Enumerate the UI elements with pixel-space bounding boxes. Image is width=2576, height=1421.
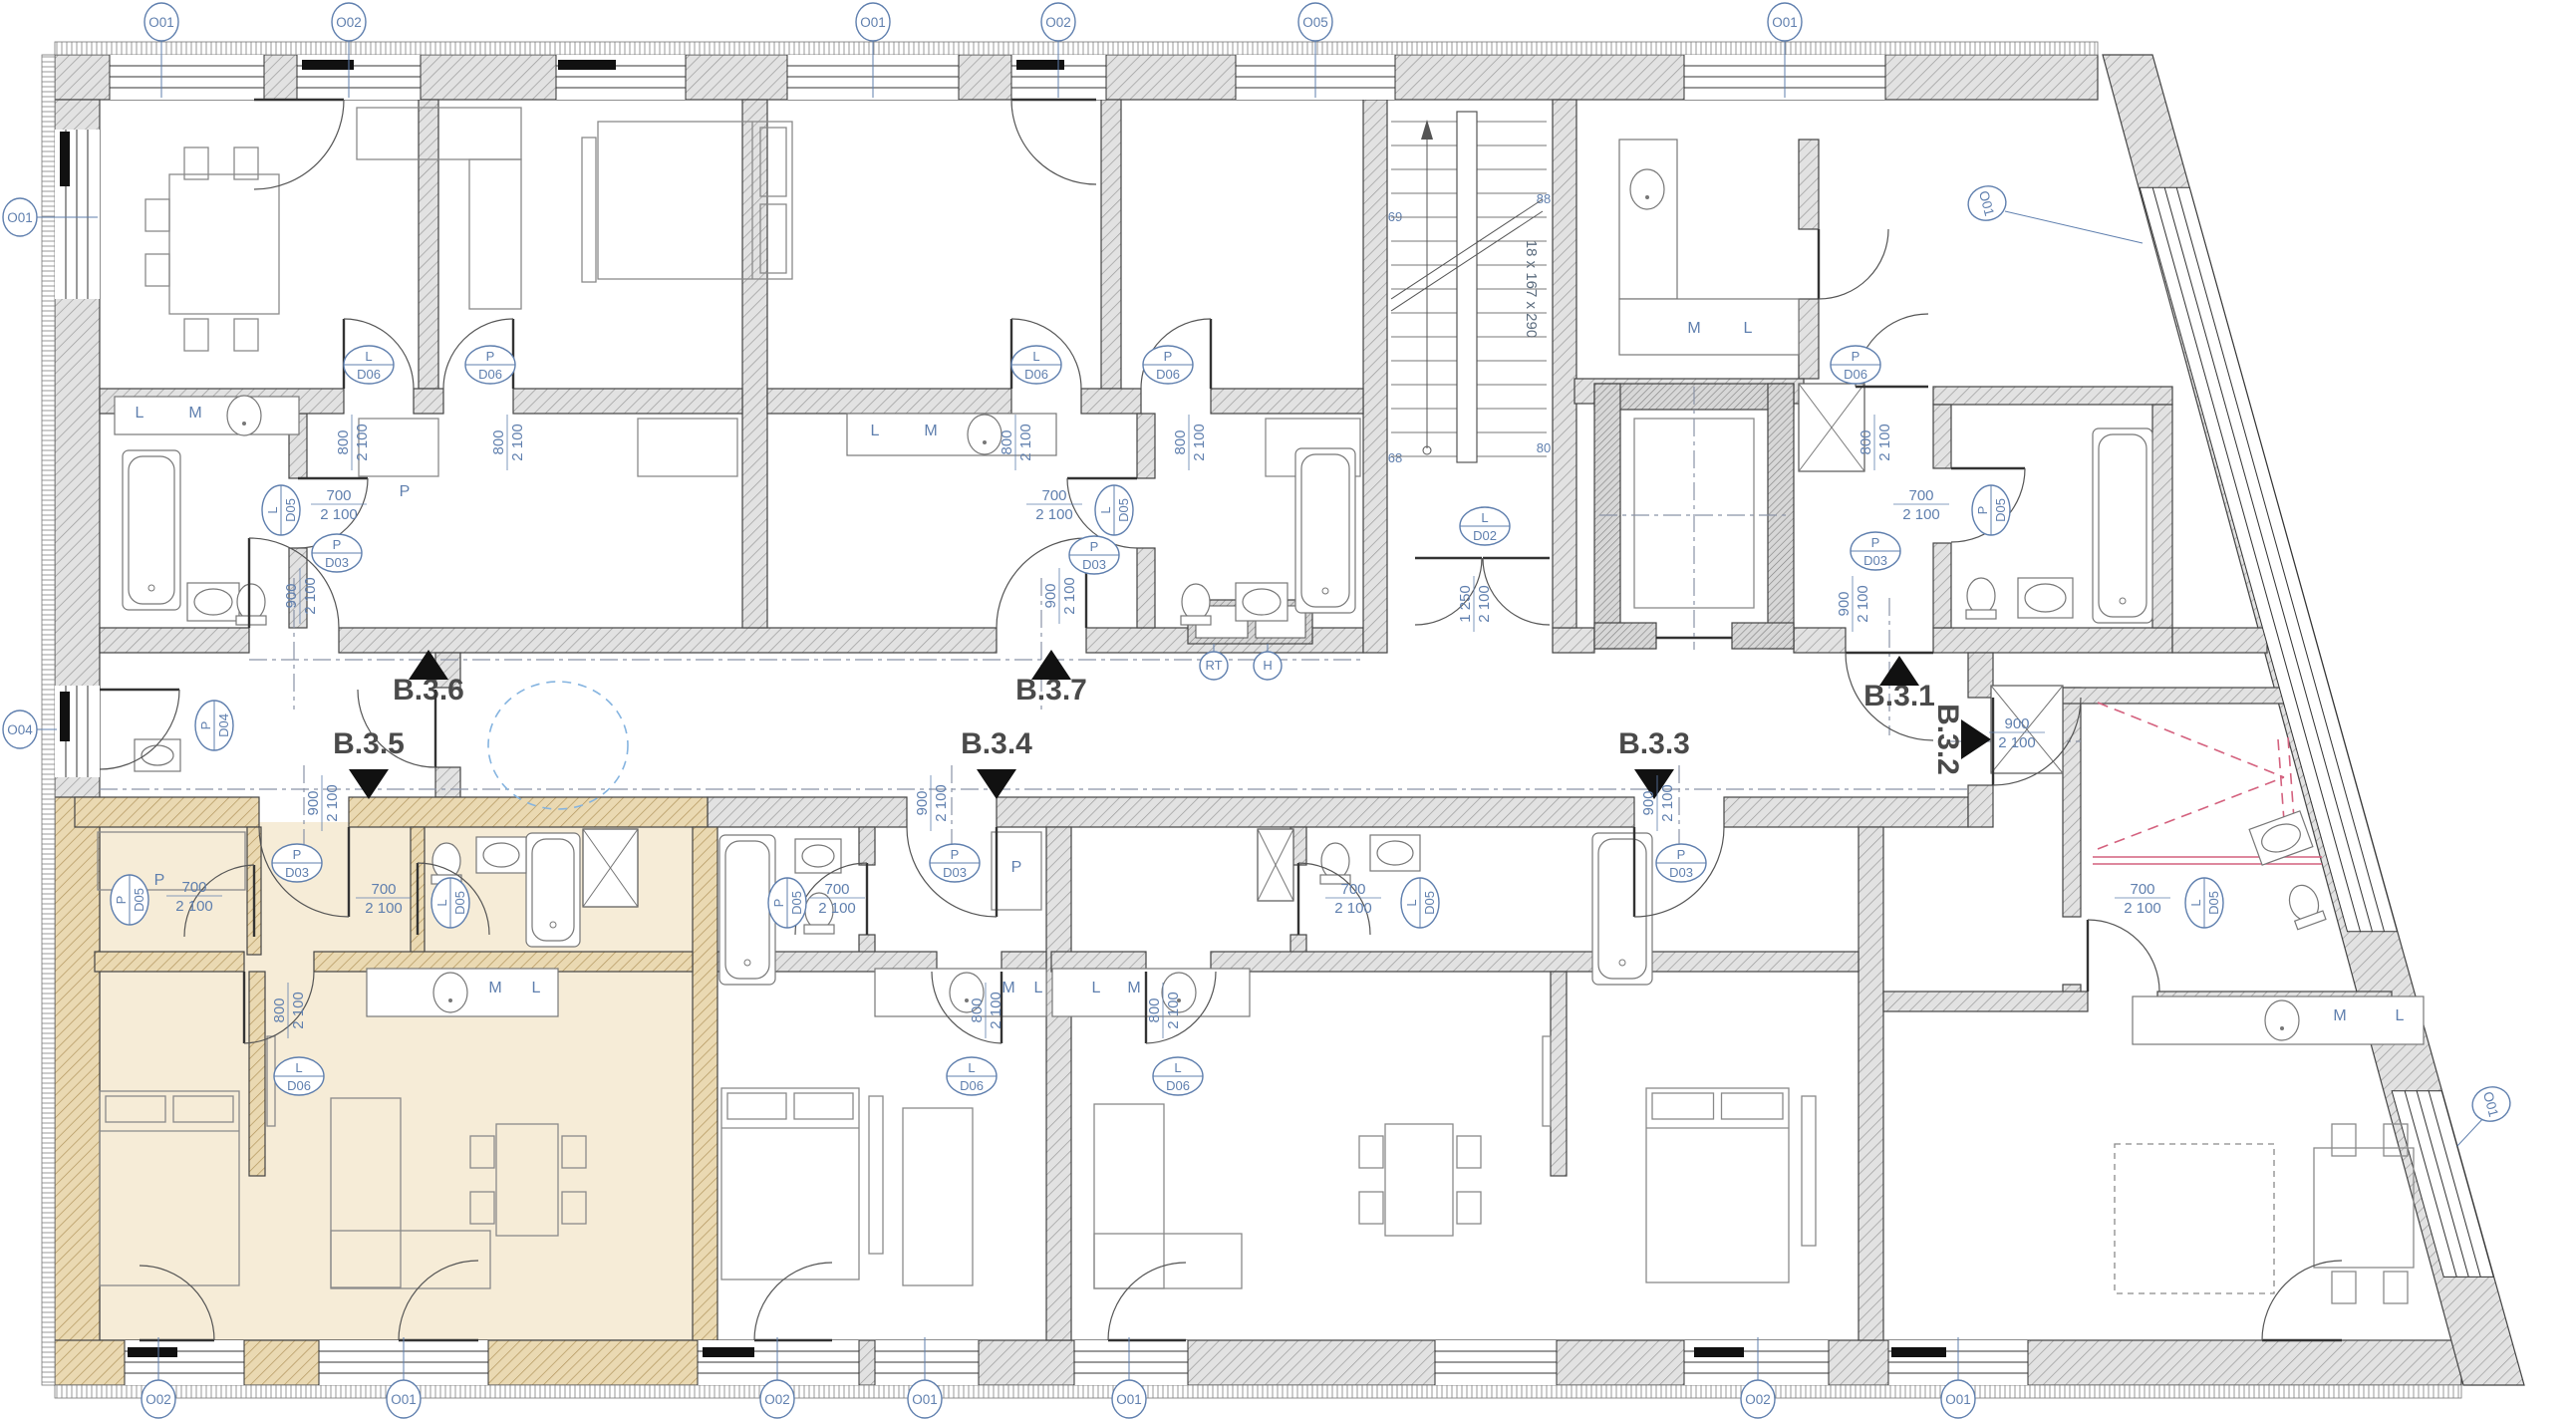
bathtub [719, 835, 775, 985]
interior-wall-highlighted [75, 797, 259, 827]
door-tag-leaf: L [1481, 510, 1488, 525]
kitchen-letter-l: L [532, 980, 541, 996]
door-height: 2 100 [1334, 900, 1372, 917]
door-height: 2 100 [509, 424, 526, 461]
door-height: 2 100 [175, 898, 213, 915]
interior-wall [339, 628, 997, 653]
door-height: 2 100 [988, 992, 1004, 1029]
interior-wall [742, 100, 767, 628]
kitchen-sink [1630, 169, 1664, 209]
interior-wall [1933, 387, 2172, 405]
door-tag-leaf: P [486, 349, 495, 364]
bathtub [2093, 428, 2152, 623]
kitchen-letter-l: L [1744, 320, 1753, 337]
door-tag-leaf: L [365, 349, 372, 364]
bathtub [1295, 448, 1355, 613]
door-tag: PD06 [465, 346, 515, 384]
door-width: 700 [1908, 487, 1933, 504]
door-tag-leaf: L [265, 506, 280, 513]
door-tag: PD03 [1069, 536, 1119, 574]
door-height: 2 100 [2124, 900, 2161, 917]
wash-basin [476, 837, 526, 873]
door-tag-leaf: P [1871, 535, 1880, 550]
door-tag-code: D06 [287, 1078, 311, 1093]
wardrobe-letter: P [1011, 859, 1022, 876]
door-height: 2 100 [1476, 585, 1493, 623]
door-width: 700 [181, 879, 206, 896]
grid-marker-label: O05 [1302, 15, 1328, 30]
door-width: 800 [271, 997, 288, 1022]
grid-marker-label: O02 [145, 1392, 171, 1407]
wash-basin [2018, 578, 2073, 618]
door-tag: LD05 [431, 878, 469, 928]
grid-marker-label: O01 [1945, 1392, 1971, 1407]
door-height: 2 100 [324, 784, 341, 822]
door-tag: LD06 [274, 1057, 324, 1095]
interior-wall-highlighted [693, 827, 717, 1340]
door-tag: LD06 [344, 346, 394, 384]
door-tag-leaf: P [293, 847, 302, 862]
bathtub [1592, 833, 1652, 985]
grid-marker-label: O02 [336, 15, 362, 30]
interior-wall-highlighted [249, 972, 265, 1176]
interior-wall [2063, 688, 2292, 704]
door-tag-code: D06 [960, 1078, 984, 1093]
door-tag-code: D04 [216, 713, 231, 737]
door-tag-leaf: L [295, 1060, 302, 1075]
bathtub [526, 833, 580, 947]
elevator-shaft-wall [1732, 623, 1794, 649]
elevator-shaft-wall [1768, 384, 1794, 649]
kitchen-letter-l: L [1034, 980, 1043, 996]
door-width: 700 [824, 881, 849, 898]
door-tag-code: D03 [285, 865, 309, 880]
door-tag: PD06 [1143, 346, 1193, 384]
door-height: 2 100 [1998, 734, 2036, 751]
door-leaf-mark [1016, 60, 1064, 70]
interior-wall [1137, 414, 1155, 478]
grid-marker-label: O02 [1745, 1392, 1771, 1407]
door-width: 800 [1858, 429, 1874, 454]
interior-wall [2172, 628, 2267, 653]
kitchen-letter-l: L [1092, 980, 1101, 996]
interior-wall [1933, 405, 1951, 468]
grid-marker-label: O01 [1116, 1392, 1142, 1407]
wash-basin [187, 583, 239, 621]
kitchen-letter-l: L [2396, 1007, 2405, 1024]
interior-wall [1794, 628, 1846, 653]
grid-marker-label: O01 [7, 210, 33, 225]
door-tag-code: D05 [1116, 498, 1131, 522]
interior-wall [1799, 299, 1819, 379]
door-tag-code: D03 [943, 865, 967, 880]
riser-label-text: RT [1205, 658, 1222, 673]
door-height: 2 100 [354, 424, 371, 461]
grid-marker-label: O04 [7, 722, 33, 737]
door-tag-code: D06 [357, 367, 381, 382]
interior-wall [1211, 389, 1363, 414]
interior-wall [1933, 543, 1951, 628]
interior-wall [1211, 952, 1859, 972]
kitchen-letter-m: M [924, 423, 937, 439]
toilet [236, 584, 266, 625]
door-tag-code: D06 [1166, 1078, 1190, 1093]
door-tag-code: D03 [325, 555, 349, 570]
interior-wall-highlighted [95, 952, 244, 972]
door-tag: LD05 [1095, 485, 1133, 535]
interior-wall [2063, 688, 2081, 917]
door-width: 800 [1172, 429, 1189, 454]
door-tag-leaf: P [951, 847, 960, 862]
door-height: 2 100 [320, 506, 358, 523]
door-tag: LD06 [1011, 346, 1061, 384]
door-tag-leaf: P [1852, 349, 1860, 364]
door-width: 900 [1042, 583, 1059, 608]
duct-shaft [1258, 829, 1293, 901]
interior-wall [2152, 405, 2172, 628]
door-tag-code: D06 [1024, 367, 1048, 382]
wardrobe-letter: P [154, 872, 165, 889]
door-tag: PD03 [1851, 532, 1900, 570]
door-width: 900 [1836, 591, 1853, 616]
door-width: 700 [371, 881, 396, 898]
door-height: 2 100 [365, 900, 403, 917]
door-tag: LD05 [2185, 878, 2223, 928]
door-width: 700 [2130, 881, 2154, 898]
kitchen-sink [2265, 1000, 2299, 1040]
floor-plan-page: B.3.1B.3.2B.3.3B.3.4B.3.5B.3.6B.3.7PPPPM… [0, 0, 2576, 1421]
riser-label-text: H [1263, 658, 1272, 673]
door-tag-leaf: P [1677, 847, 1686, 862]
door-width: 700 [1041, 487, 1066, 504]
door-tag-leaf: L [434, 899, 449, 906]
door-tag: PD03 [272, 844, 322, 882]
interior-wall [414, 389, 443, 414]
door-tag-leaf: L [1032, 349, 1039, 364]
bathtub [123, 450, 180, 610]
grid-marker-label: O02 [764, 1392, 790, 1407]
door-tag-code: D06 [1156, 367, 1180, 382]
interior-wall [1883, 992, 2088, 1011]
door-height: 2 100 [1035, 506, 1073, 523]
interior-wall [1137, 548, 1155, 628]
door-width: 800 [335, 429, 352, 454]
door-leaf-mark [128, 1347, 177, 1357]
interior-wall [100, 628, 249, 653]
door-width: 700 [1340, 881, 1365, 898]
door-tag-code: D05 [132, 888, 146, 912]
door-width: 900 [1640, 790, 1657, 815]
door-tag-leaf: L [1404, 899, 1419, 906]
interior-wall [1553, 628, 1594, 653]
interior-wall [708, 797, 907, 827]
door-tag-leaf: P [1090, 539, 1099, 554]
grid-marker-label: O01 [860, 15, 886, 30]
door-tag: LD05 [262, 485, 300, 535]
kitchen-counter [1619, 299, 1799, 355]
door-tag: LD06 [1153, 1057, 1203, 1095]
door-tag: PD05 [768, 878, 806, 928]
kitchen-letter-m: M [188, 405, 201, 422]
wardrobe-letter: P [400, 483, 411, 500]
interior-wall [1101, 100, 1121, 389]
door-tag-leaf: L [2188, 899, 2203, 906]
door-tag: LD02 [1460, 507, 1510, 545]
interior-wall [1363, 100, 1387, 653]
duct-shaft [583, 829, 638, 907]
door-tag-leaf: L [1174, 1060, 1181, 1075]
door-height: 2 100 [1659, 784, 1676, 822]
door-height: 2 100 [1191, 424, 1208, 461]
door-height: 2 100 [1017, 424, 1034, 461]
door-height: 2 100 [290, 992, 307, 1029]
floor-plan-canvas: B.3.1B.3.2B.3.3B.3.4B.3.5B.3.6B.3.7PPPPM… [0, 0, 2576, 1421]
door-tag-code: D05 [1422, 891, 1437, 915]
door-tag: PD05 [111, 875, 148, 925]
apartment-label: B.3.4 [961, 727, 1032, 760]
door-width: 900 [2004, 715, 2029, 732]
wash-basin [1236, 583, 1288, 621]
interior-wall [419, 100, 438, 389]
kitchen-letter-m: M [1687, 320, 1700, 337]
door-tag: LD05 [1401, 878, 1439, 928]
exterior-wall-highlighted [55, 797, 100, 1385]
interior-wall [1046, 827, 1071, 1340]
door-width: 800 [490, 429, 507, 454]
door-height: 2 100 [933, 784, 950, 822]
interior-wall [859, 827, 875, 865]
interior-wall [1933, 628, 2172, 653]
door-tag: PD03 [1656, 844, 1706, 882]
door-width: 700 [326, 487, 351, 504]
elevator-shaft-wall [1594, 623, 1656, 649]
door-tag-code: D06 [1844, 367, 1867, 382]
door-tag: PD05 [1972, 485, 2010, 535]
toilet [1966, 578, 1996, 619]
stair-mark: 68 [1388, 450, 1402, 465]
door-tag-code: D02 [1473, 528, 1497, 543]
grid-marker-label: O02 [1045, 15, 1071, 30]
door-tag-code: D03 [1863, 553, 1887, 568]
door-height: 2 100 [1855, 585, 1871, 623]
wash-basin [1370, 835, 1420, 871]
interior-wall [435, 767, 460, 797]
door-tag-code: D05 [283, 498, 298, 522]
grid-marker-label: O01 [1772, 15, 1798, 30]
door-height: 2 100 [818, 900, 856, 917]
duct-shaft [1799, 384, 1864, 471]
toilet [1181, 584, 1211, 625]
grid-marker-label: O01 [912, 1392, 938, 1407]
grid-marker-label: O01 [148, 15, 174, 30]
door-width: 800 [969, 997, 986, 1022]
kitchen-letter-l: L [136, 405, 144, 422]
door-tag-leaf: P [771, 899, 786, 908]
door-tag: PD03 [312, 534, 362, 572]
door-tag-leaf: P [114, 896, 129, 905]
interior-wall [1799, 140, 1819, 229]
door-leaf-mark [60, 692, 70, 741]
interior-wall [1553, 100, 1576, 628]
door-tag: PD06 [1831, 346, 1880, 384]
interior-wall [767, 389, 1011, 414]
door-leaf-mark [703, 1347, 754, 1357]
door-tag-code: D05 [452, 891, 467, 915]
elevator-shaft-wall [1594, 384, 1620, 649]
kitchen-letter-l: L [871, 423, 880, 439]
door-leaf-mark [1891, 1347, 1946, 1357]
interior-wall [1551, 972, 1567, 1176]
interior-wall [1859, 827, 1883, 1340]
door-leaf-mark [60, 132, 70, 186]
door-tag-code: D05 [2206, 891, 2221, 915]
door-tag: PD03 [930, 844, 980, 882]
door-tag-code: D05 [789, 891, 804, 915]
door-tag-code: D06 [478, 367, 502, 382]
kitchen-letter-m: M [2333, 1007, 2346, 1024]
interior-wall-highlighted [349, 797, 708, 827]
door-width: 900 [283, 583, 300, 608]
door-width: 1 250 [1457, 585, 1474, 623]
door-tag: PD04 [195, 701, 233, 750]
kitchen-sink [227, 396, 261, 435]
kitchen-counter [1619, 140, 1677, 299]
door-leaf-mark [1694, 1347, 1744, 1357]
door-height: 2 100 [1876, 424, 1893, 461]
door-leaf-mark [302, 60, 354, 70]
apartment-label: B.3.2 [1931, 704, 1964, 775]
door-height: 2 100 [1902, 506, 1940, 523]
door-width: 800 [1146, 997, 1163, 1022]
interior-wall [1724, 797, 1968, 827]
door-tag-leaf: P [1975, 506, 1990, 515]
door-tag-code: D03 [1669, 865, 1693, 880]
interior-wall [997, 797, 1634, 827]
door-height: 2 100 [1165, 992, 1182, 1029]
kitchen-sink [433, 973, 467, 1012]
door-tag-leaf: P [1164, 349, 1173, 364]
door-width: 900 [914, 790, 931, 815]
door-leaf-mark [558, 60, 616, 70]
grid-marker-label: O01 [391, 1392, 417, 1407]
door-tag-leaf: L [968, 1060, 975, 1075]
door-tag-leaf: P [333, 537, 342, 552]
kitchen-letter-m: M [488, 980, 501, 996]
door-tag: LD06 [947, 1057, 997, 1095]
door-tag-code: D05 [1993, 498, 2008, 522]
kitchen-letter-m: M [1127, 980, 1140, 996]
door-tag-code: D03 [1082, 557, 1106, 572]
kitchen-sink [968, 415, 1002, 454]
apartment-label: B.3.3 [1618, 727, 1690, 760]
interior-wall [1968, 653, 1993, 698]
interior-wall [1968, 785, 1993, 827]
interior-wall [513, 389, 742, 414]
door-tag-leaf: L [1098, 506, 1113, 513]
toilet [1320, 843, 1350, 884]
interior-wall [1081, 389, 1141, 414]
door-tag-leaf: P [198, 721, 213, 730]
door-width: 800 [999, 429, 1015, 454]
door-height: 2 100 [1061, 577, 1078, 615]
stair-mark: 80 [1537, 440, 1551, 455]
door-height: 2 100 [302, 577, 319, 615]
door-width: 900 [305, 790, 322, 815]
wash-basin [795, 839, 841, 873]
